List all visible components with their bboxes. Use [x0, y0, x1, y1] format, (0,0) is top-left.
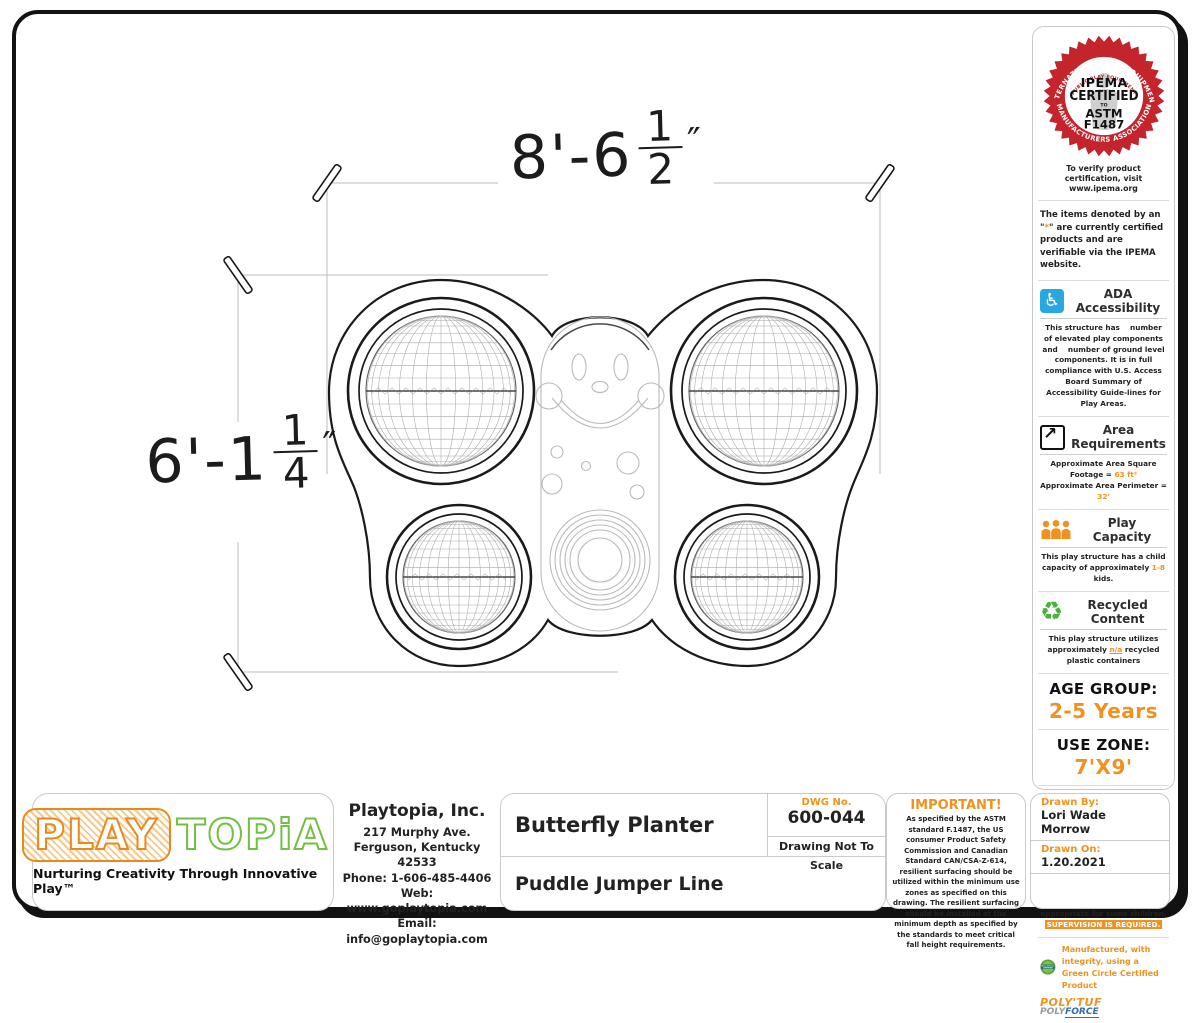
- company-phone: Phone: 1-606-485-4406: [336, 871, 498, 886]
- capacity-value: 1-8: [1152, 563, 1165, 572]
- polyforce-logo: POLYFORCE: [1040, 1008, 1167, 1017]
- use-zone-value: 7'X9': [1040, 755, 1167, 779]
- use-zone-label: USE ZONE:: [1040, 736, 1167, 754]
- company-address-1: 217 Murphy Ave.: [336, 825, 498, 840]
- drawn-by-value: Lori Wade Morrow: [1041, 808, 1159, 836]
- ada-text: This structure has number of elevated pl…: [1040, 323, 1167, 411]
- ada-accessibility-section: ♿ ADA Accessibility This structure has n…: [1033, 281, 1174, 417]
- important-title: IMPORTANT!: [892, 798, 1020, 813]
- area-perimeter-value: 32': [1097, 492, 1109, 501]
- product-title: Butterfly Planter: [501, 794, 767, 856]
- dwg-number-cell: DWG No. 600-044: [767, 794, 885, 836]
- area-sqft-value: 63 ft²: [1114, 470, 1137, 479]
- logo-topia-wordmark: TOPiA: [177, 812, 329, 858]
- recycled-title: Recycled Content: [1068, 598, 1167, 626]
- dwg-value: 600-044: [768, 808, 885, 828]
- playtopia-logo: PLAY TOPiA ™: [22, 808, 344, 862]
- recycled-content-section: ♻ Recycled Content This play structure u…: [1033, 592, 1174, 673]
- width-dimension-label: 8'-6 1 2 ″: [467, 122, 749, 209]
- recycle-icon: ♻: [1040, 599, 1063, 625]
- svg-text:CERTIFIED: CERTIFIED: [1069, 89, 1138, 104]
- drawn-by-label: Drawn By:: [1041, 797, 1159, 808]
- use-zone-section: USE ZONE: 7'X9': [1033, 730, 1174, 785]
- company-web: Web: www.goplaytopia.com: [336, 886, 498, 917]
- company-name: Playtopia, Inc.: [336, 800, 498, 823]
- capacity-title: Play Capacity: [1077, 516, 1167, 544]
- drawing-title-panel: Butterfly Planter DWG No. 600-044 Drawin…: [500, 793, 886, 911]
- width-dimension-fraction: 1 2: [637, 108, 683, 189]
- area-title: Area Requirements: [1070, 423, 1167, 451]
- green-circle-certified-badge: GreenCircle CERTIFIED: [1040, 944, 1056, 990]
- drawn-on-label: Drawn On:: [1041, 844, 1159, 855]
- spec-sidebar: INTERNATIONAL PLAY EQUIPMENT MANUFACTURE…: [1032, 26, 1175, 790]
- ipema-certification-section: INTERNATIONAL PLAY EQUIPMENT MANUFACTURE…: [1033, 27, 1174, 200]
- recycled-value: n/a: [1109, 645, 1122, 654]
- certified-items-note: The items denoted by an "*" are currentl…: [1033, 201, 1174, 279]
- area-requirements-section: ↗ Area Requirements Approximate Area Squ…: [1033, 417, 1174, 509]
- product-line-title: Puddle Jumper Line: [501, 856, 885, 910]
- green-circle-section: GreenCircle CERTIFIED Manufactured, with…: [1033, 938, 1174, 1023]
- height-dimension-fraction: 1 4: [273, 412, 319, 493]
- company-address-2: Ferguson, Kentucky 42533: [336, 840, 498, 871]
- play-capacity-section: Play Capacity This play structure has a …: [1033, 510, 1174, 591]
- people-icon: [1040, 520, 1072, 540]
- drawn-on-value: 1.20.2021: [1041, 855, 1159, 869]
- important-text: As specified by the ASTM standard F.1487…: [892, 814, 1020, 951]
- playtopia-logo-panel: PLAY TOPiA ™ Nurturing Creativity Throug…: [32, 793, 334, 911]
- company-email: Email: info@goplaytopia.com: [336, 916, 498, 947]
- svg-text:CERTIFIED: CERTIFIED: [1043, 968, 1053, 970]
- age-group-label: AGE GROUP:: [1040, 680, 1167, 698]
- ada-title: ADA Accessibility: [1069, 287, 1167, 315]
- scale-note: Drawing Not To Scale: [767, 836, 885, 856]
- svg-text:IPEMA: IPEMA: [1080, 75, 1127, 90]
- drawn-info-panel: Drawn By: Lori Wade Morrow Drawn On: 1.2…: [1030, 793, 1170, 909]
- green-circle-text: Manufactured, with integrity, using a Gr…: [1062, 944, 1167, 992]
- dwg-label: DWG No.: [768, 797, 885, 808]
- ipema-verify-note: To verify product certification, visit w…: [1040, 164, 1167, 194]
- supervision-required-highlight: SUPERVISION IS REQUIRED.: [1045, 920, 1163, 929]
- ipema-certified-seal: INTERNATIONAL PLAY EQUIPMENT MANUFACTURE…: [1043, 35, 1165, 157]
- height-dimension-label: 6'-1 1 4 ″: [145, 427, 342, 512]
- height-dimension-main: 6'-1: [145, 429, 269, 492]
- width-dimension-main: 8'-6: [509, 125, 633, 188]
- wheelchair-icon: ♿: [1040, 289, 1064, 313]
- logo-play-wordmark: PLAY: [22, 808, 170, 862]
- age-group-value: 2-5 Years: [1040, 699, 1167, 723]
- company-info: Playtopia, Inc. 217 Murphy Ave. Ferguson…: [336, 800, 498, 904]
- logo-tagline: Nurturing Creativity Through Innovative …: [33, 866, 333, 896]
- age-group-section: AGE GROUP: 2-5 Years: [1033, 674, 1174, 729]
- svg-text:F1487: F1487: [1083, 118, 1124, 132]
- area-arrow-icon: ↗: [1040, 425, 1065, 450]
- important-notice-panel: IMPORTANT! As specified by the ASTM stan…: [886, 793, 1026, 909]
